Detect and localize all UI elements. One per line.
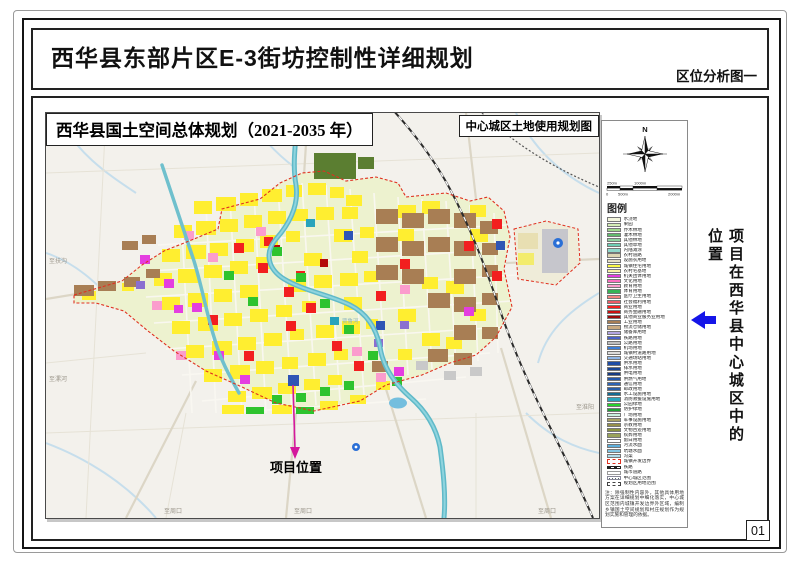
legend-color-swatch	[607, 269, 621, 273]
legend-color-swatch	[607, 331, 621, 335]
legend-item-label: 供电用地	[624, 371, 642, 376]
legend-color-swatch	[607, 367, 621, 371]
legend-item-label: 物流仓储用地	[624, 325, 652, 330]
legend-color-swatch	[607, 253, 621, 257]
legend-color-swatch	[607, 444, 621, 448]
legend-color-swatch	[607, 392, 621, 396]
legend-item-label: 文化用地	[624, 279, 642, 284]
poi-icon	[352, 443, 360, 451]
legend-line-swatch	[607, 476, 621, 480]
compass-rose	[623, 136, 667, 172]
legend-line-swatch	[607, 466, 621, 469]
legend-color-swatch	[607, 248, 621, 252]
legend-color-swatch	[607, 397, 621, 401]
legend-item-label: 公园绿地	[624, 402, 642, 407]
location-arrow-icon	[691, 311, 717, 329]
legend-special-list: 城镇开发边界 铁路 城市道路 中心城区范围	[607, 459, 684, 487]
legend-item-label: 广场用地	[624, 413, 642, 418]
legend-item-label: 机场用地	[624, 346, 642, 351]
scale-label: 500m	[618, 192, 629, 197]
legend-color-swatch	[607, 243, 621, 247]
legend-item-label: 殡葬用地	[624, 433, 642, 438]
legend-color-swatch	[607, 387, 621, 391]
legend-color-swatch	[607, 300, 621, 304]
map-title-box: 西华县国土空间总体规划（2021-2035 年）	[46, 113, 373, 146]
legend-color-swatch	[607, 377, 621, 381]
legend-item-label: 交通场站用地	[624, 356, 652, 361]
land-use-map: 至扶沟 至漯河 至鄢陵 至周口 至周口 至淮阳 至周口 贾鲁河 项目位置	[46, 113, 599, 518]
legend-color-swatch	[607, 233, 621, 237]
legend-item-label: 乔木林地	[624, 228, 642, 233]
legend-item-label: 消防救援设施用地	[624, 397, 661, 402]
legend-item-label: 设施农用地	[624, 258, 647, 263]
legend-item-label: 河流水面	[624, 443, 642, 448]
legend-item-label: 机关团体用地	[624, 274, 652, 279]
legend-color-swatch	[607, 274, 621, 278]
legend-color-swatch	[607, 408, 621, 412]
legend-item-label: 城市道路	[624, 470, 642, 475]
legend-panel: N	[601, 120, 688, 528]
legend-item-label: 教育用地	[624, 284, 642, 289]
legend-item-label: 铁路	[624, 465, 633, 470]
legend-item-label: 其他林地	[624, 238, 642, 243]
legend-item-label: 防护绿地	[624, 407, 642, 412]
legend-color-swatch	[607, 418, 621, 422]
scale-bar-segments	[607, 186, 682, 190]
legend-color-swatch	[607, 305, 621, 309]
legend-item-list: 水浇地 果园 乔木林地 灌木林地	[607, 217, 684, 459]
legend-item-label: 商业用地	[624, 305, 642, 310]
legend-item-label: 沟渠	[624, 454, 633, 459]
legend-color-swatch	[607, 295, 621, 299]
legend-color-swatch	[607, 223, 621, 227]
legend-color-swatch	[607, 356, 621, 360]
arrow-head	[691, 311, 705, 329]
scale-bar: 250m 1000m 0 500m 2000m	[605, 180, 684, 198]
map-title: 西华县国土空间总体规划（2021-2035 年）	[56, 121, 363, 140]
edge-label: 至周口	[538, 508, 556, 515]
legend-color-swatch	[607, 289, 621, 293]
north-arrow: N	[605, 123, 684, 179]
legend-note: 注：除强制性内容外，其他具体用地方案在详细规划中细化落实，中心城区范围内城镇开发…	[605, 490, 684, 519]
edge-label: 至周口	[294, 508, 312, 515]
legend-color-swatch	[607, 217, 621, 221]
legend-item-label: 供水用地	[624, 361, 642, 366]
legend-item-label: 水工设施用地	[624, 392, 652, 397]
legend-item-label: 坑塘水面	[624, 449, 642, 454]
scale-label: 0	[606, 192, 609, 197]
legend-item-label: 农村宅基地	[624, 269, 647, 274]
project-location-label: 项目位置	[270, 460, 322, 475]
map-corner-label-box: 中心城区土地使用规划图	[459, 115, 600, 137]
legend-color-swatch	[607, 238, 621, 242]
legend-color-swatch	[607, 382, 621, 386]
legend-item-label: 邮政用地	[624, 387, 642, 392]
legend-item-label: 城镇住宅用地	[624, 264, 652, 269]
legend-heading: 图例	[607, 200, 684, 215]
legend-color-swatch	[607, 428, 621, 432]
legend-color-swatch	[607, 423, 621, 427]
page-number: 01	[751, 524, 765, 538]
legend-item-label: 排水用地	[624, 366, 642, 371]
sidebar-caption: 项目在西华县中心城区中的位置	[716, 228, 746, 458]
arrow-bar	[704, 316, 716, 324]
legend-item-label: 城镇开发边界	[624, 459, 652, 464]
legend-item-label: 灌木林地	[624, 233, 642, 238]
legend-line-swatch	[607, 471, 621, 475]
sheet-subtitle: 区位分析图一	[676, 65, 757, 85]
legend-item-label: 水浇地	[624, 217, 638, 222]
legend-item-label: 中心城区范围	[624, 476, 652, 481]
planning-sheet: 西华县东部片区E-3街坊控制性详细规划 区位分析图一	[0, 0, 800, 565]
legend-item-label: 文物古迹用地	[624, 428, 652, 433]
legend-item-label: 内陆滩涂	[624, 248, 642, 253]
legend-item-label: 通信用地	[624, 382, 642, 387]
edge-label: 至周口	[164, 508, 182, 515]
river-label: 贾鲁河	[342, 317, 359, 325]
legend-line-swatch	[607, 482, 621, 486]
legend-color-swatch	[607, 320, 621, 324]
legend-color-swatch	[607, 351, 621, 355]
legend-color-swatch	[607, 336, 621, 340]
legend-item-label: 农村道路	[624, 253, 642, 258]
legend-item-label: 公路用地	[624, 341, 642, 346]
legend-item-label: 工业用地	[624, 320, 642, 325]
legend-color-swatch	[607, 279, 621, 283]
legend-item-label: 铁路用地	[624, 336, 642, 341]
legend-item-label: 储备库用地	[624, 330, 647, 335]
scale-label: 1000m	[634, 181, 647, 186]
legend-line-swatch	[607, 459, 621, 463]
scale-label: 2000m	[668, 192, 681, 197]
legend-color-swatch	[607, 315, 621, 319]
legend-color-swatch	[607, 403, 621, 407]
legend-item-label: 规划区用地范围	[624, 481, 656, 486]
map-panel: 至扶沟 至漯河 至鄢陵 至周口 至周口 至淮阳 至周口 贾鲁河 项目位置 西华县…	[45, 112, 600, 519]
legend-item-label: 其他商业服务业用地	[624, 315, 665, 320]
north-label: N	[642, 125, 647, 134]
page-number-box: 01	[746, 520, 770, 541]
edge-label: 至扶沟	[49, 257, 67, 265]
legend-color-swatch	[607, 259, 621, 263]
legend-item-label: 供燃气用地	[624, 377, 647, 382]
legend-item-label: 医疗卫生用地	[624, 294, 652, 299]
legend-color-swatch	[607, 346, 621, 350]
legend-item-label: 社会福利用地	[624, 300, 652, 305]
legend-color-swatch	[607, 454, 621, 458]
edge-label: 至淮阳	[576, 403, 594, 411]
legend-item-label: 宗教用地	[624, 423, 642, 428]
map-corner-label: 中心城区土地使用规划图	[466, 121, 593, 133]
legend-item-label: 体育用地	[624, 289, 642, 294]
legend-item-label: 其他草地	[624, 243, 642, 248]
legend-color-swatch	[607, 228, 621, 232]
legend-color-swatch	[607, 439, 621, 443]
legend-item-label: 军事设施用地	[624, 418, 652, 423]
legend-color-swatch	[607, 372, 621, 376]
legend-color-swatch	[607, 264, 621, 268]
title-box: 西华县东部片区E-3街坊控制性详细规划 区位分析图一	[31, 28, 769, 90]
legend-item-label: 果园	[624, 222, 633, 227]
edge-label: 至漯河	[49, 375, 67, 383]
page-title: 西华县东部片区E-3街坊控制性详细规划	[51, 39, 474, 73]
legend-item-label: 留白用地	[624, 438, 642, 443]
legend-color-swatch	[607, 341, 621, 345]
legend-special-item: 规划区用地范围	[607, 481, 684, 487]
legend-color-swatch	[607, 284, 621, 288]
legend-color-swatch	[607, 413, 621, 417]
legend-color-swatch	[607, 449, 621, 453]
legend-item-label: 城镇村道路用地	[624, 351, 656, 356]
legend-color-swatch	[607, 310, 621, 314]
legend-color-swatch	[607, 361, 621, 365]
legend-color-swatch	[607, 433, 621, 437]
legend-item-label: 商务金融用地	[624, 310, 652, 315]
pond	[389, 398, 407, 409]
legend-color-swatch	[607, 325, 621, 329]
scale-label: 250m	[607, 181, 618, 186]
